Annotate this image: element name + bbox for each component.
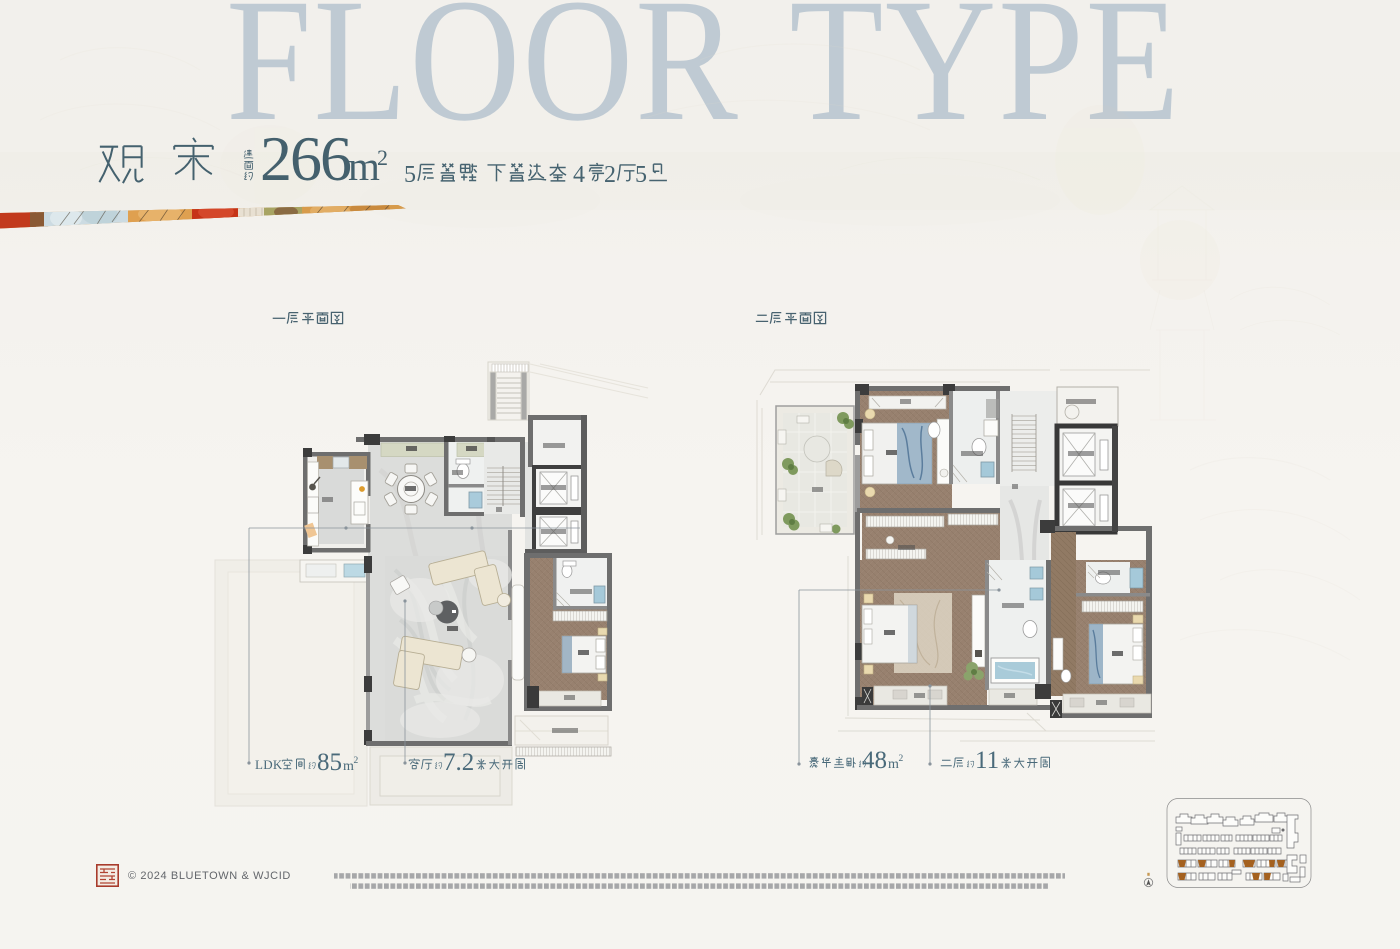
svg-text:2: 2 [899,754,904,764]
svg-text:5: 5 [635,162,647,188]
svg-text:m: m [888,757,899,772]
svg-text:5: 5 [404,162,416,188]
svg-text:m: m [348,143,380,189]
svg-text:4: 4 [573,162,585,188]
svg-text:LDK: LDK [255,757,283,772]
svg-text:48: 48 [862,747,887,774]
svg-text:© 2024 BLUETOWN & WJCID: © 2024 BLUETOWN & WJCID [128,870,291,882]
svg-text:2: 2 [604,162,616,188]
svg-text:2: 2 [377,145,388,170]
svg-text:2: 2 [354,756,359,766]
svg-text:7.2: 7.2 [443,749,474,776]
svg-text:11: 11 [975,747,999,774]
svg-text:266: 266 [260,123,351,194]
svg-text:85: 85 [317,749,342,776]
svg-text:m: m [343,759,354,774]
